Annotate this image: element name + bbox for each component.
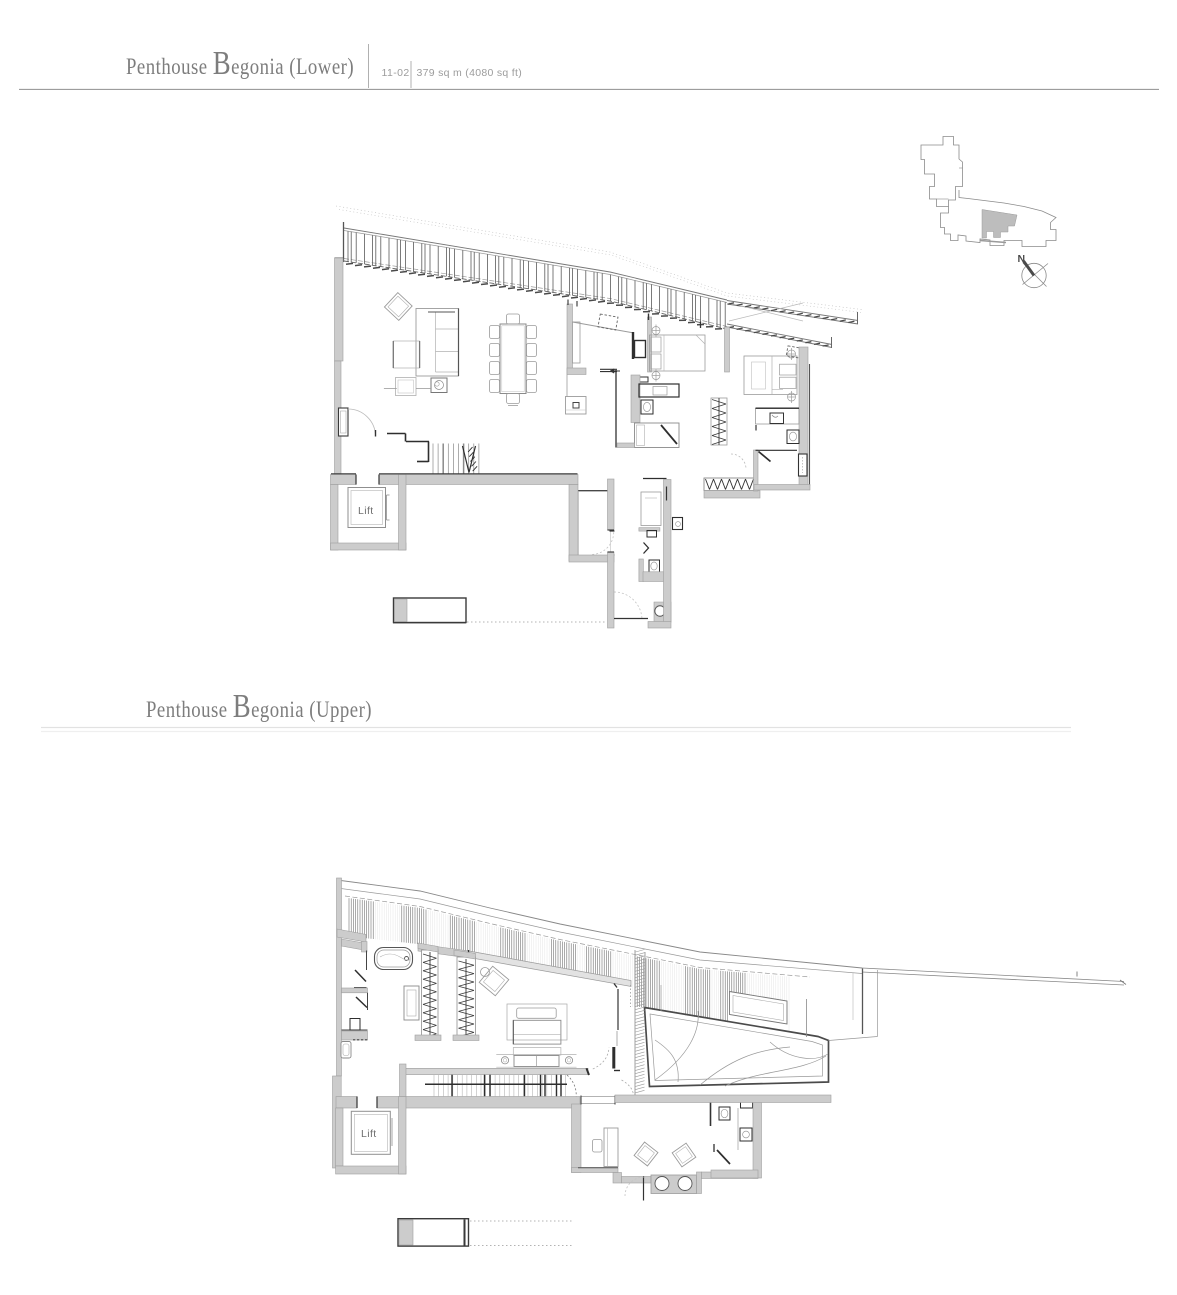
svg-text:Lift: Lift bbox=[361, 1128, 377, 1140]
svg-text:11-02: 11-02 bbox=[382, 67, 410, 79]
svg-text:N: N bbox=[1018, 253, 1026, 265]
svg-text:379 sq m (4080 sq ft): 379 sq m (4080 sq ft) bbox=[417, 67, 523, 79]
svg-text:Lift: Lift bbox=[358, 505, 374, 517]
